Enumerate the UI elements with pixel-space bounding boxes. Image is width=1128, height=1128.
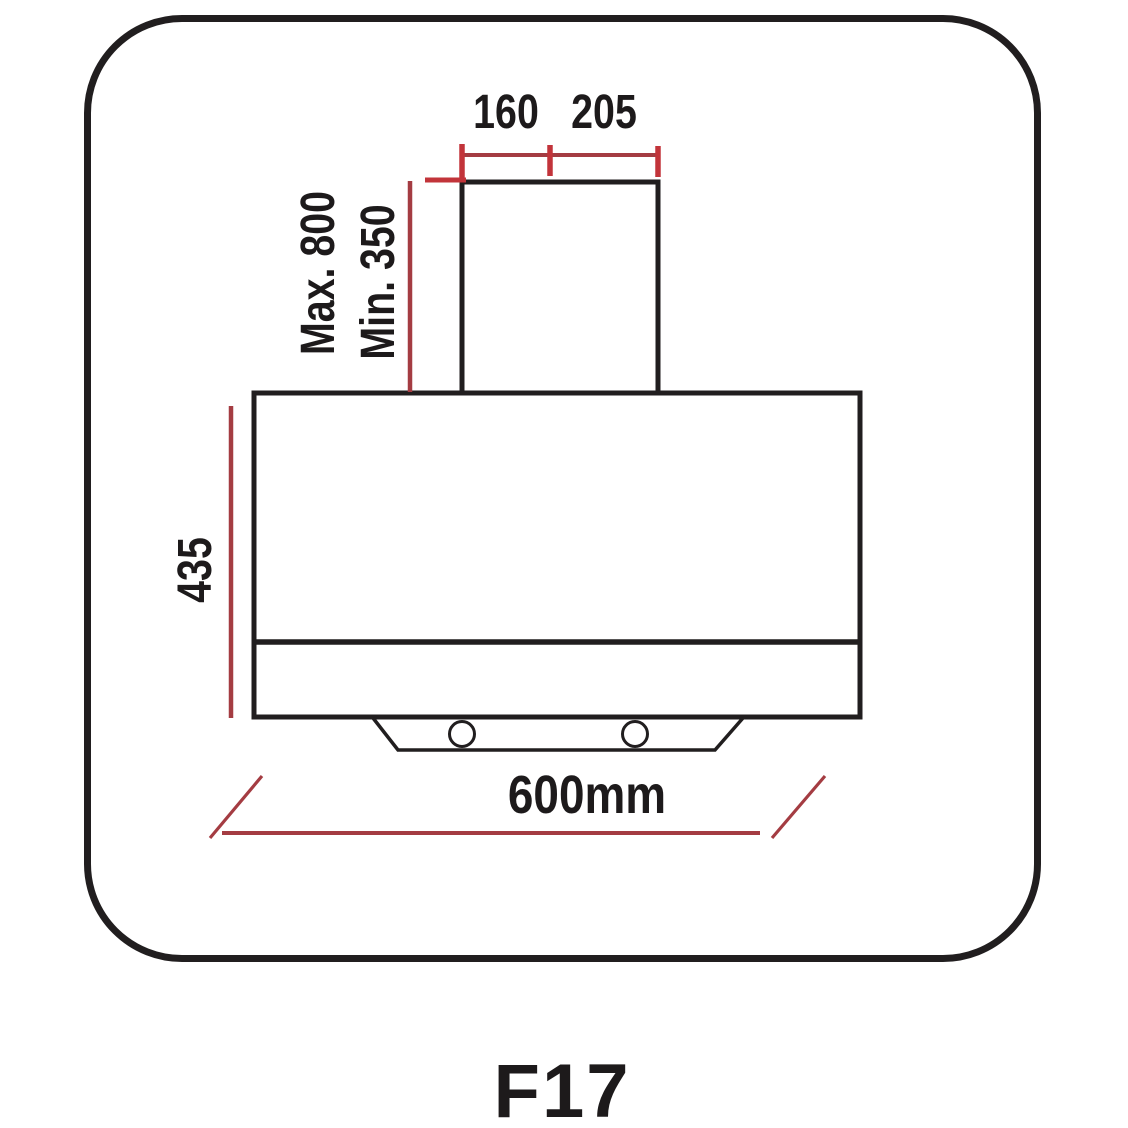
lamp-right-icon bbox=[623, 722, 648, 747]
model-name-label: F17 bbox=[494, 1054, 631, 1128]
chimney-duct-outline bbox=[462, 182, 658, 393]
hood-width-label: 600mm bbox=[508, 768, 666, 822]
bottom-trim-outline bbox=[373, 718, 743, 750]
hood-width-slash-left bbox=[210, 776, 262, 838]
lamp-left-icon bbox=[450, 722, 475, 747]
duct-width-right-label: 205 bbox=[571, 89, 637, 137]
duct-width-left-label: 160 bbox=[473, 89, 539, 137]
dimension-diagram-canvas: 160 205 Max. 800 Min. 350 435 600mm F17 bbox=[0, 0, 1128, 1128]
body-height-label: 435 bbox=[172, 537, 220, 603]
hood-width-slash-right bbox=[772, 776, 825, 838]
chimney-max-height-label: Max. 800 bbox=[295, 191, 343, 355]
hood-body-outline bbox=[254, 393, 860, 717]
chimney-min-height-label: Min. 350 bbox=[355, 204, 403, 359]
